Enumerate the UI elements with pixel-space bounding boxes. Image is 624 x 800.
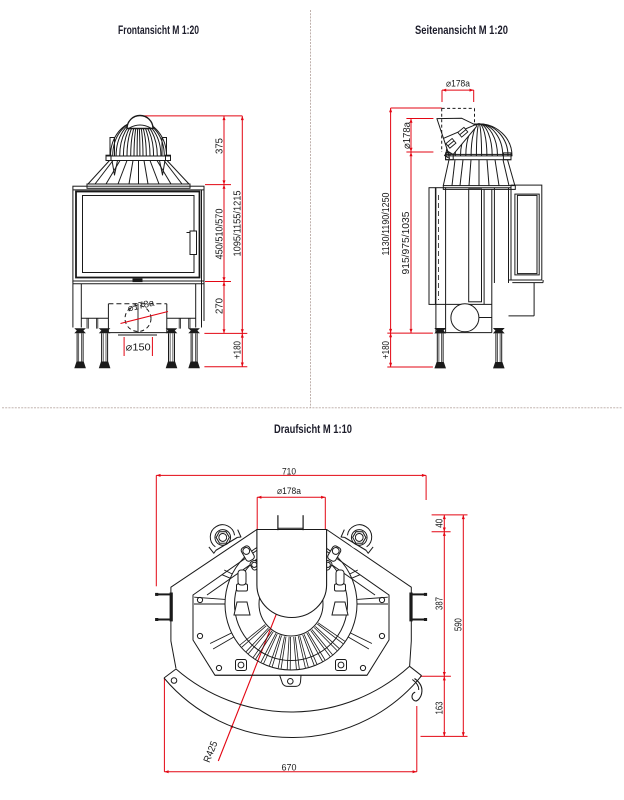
svg-text:710: 710 xyxy=(282,466,296,477)
svg-text:387: 387 xyxy=(434,597,446,610)
svg-text:590: 590 xyxy=(453,618,465,631)
svg-text:+180: +180 xyxy=(380,341,392,359)
svg-text:163: 163 xyxy=(434,701,446,714)
svg-text:1130/1190/1250: 1130/1190/1250 xyxy=(380,192,392,255)
svg-text:375: 375 xyxy=(213,138,225,154)
svg-text:⌀178a: ⌀178a xyxy=(446,79,471,90)
svg-text:40: 40 xyxy=(434,519,446,528)
svg-text:270: 270 xyxy=(213,298,225,314)
svg-text:1095/1155/1215: 1095/1155/1215 xyxy=(232,190,244,256)
svg-text:Frontansicht M 1:20: Frontansicht M 1:20 xyxy=(118,25,199,37)
svg-text:Seitenansicht M 1:20: Seitenansicht M 1:20 xyxy=(415,25,508,37)
svg-text:+180: +180 xyxy=(232,341,244,359)
svg-text:915/975/1035: 915/975/1035 xyxy=(400,211,412,274)
svg-text:450/510/570: 450/510/570 xyxy=(213,208,225,259)
svg-text:Draufsicht M 1:10: Draufsicht M 1:10 xyxy=(274,424,352,436)
svg-text:⌀178a: ⌀178a xyxy=(277,486,302,497)
svg-text:⌀178a: ⌀178a xyxy=(401,122,413,149)
svg-text:⌀150: ⌀150 xyxy=(126,342,151,354)
svg-text:670: 670 xyxy=(282,762,297,773)
